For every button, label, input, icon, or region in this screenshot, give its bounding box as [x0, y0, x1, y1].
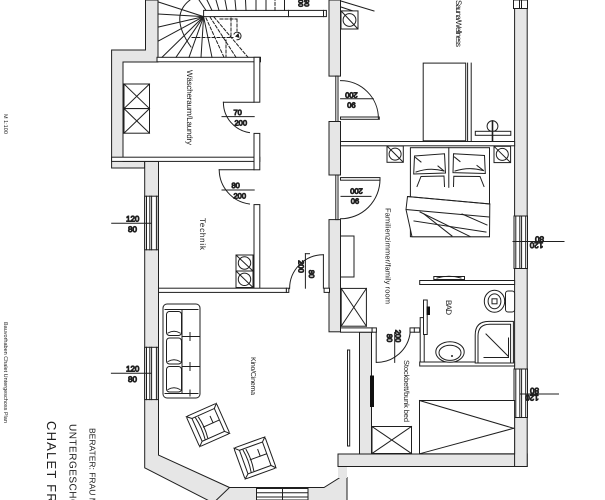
svg-text:80: 80 [307, 270, 316, 278]
svg-text:Bauvorhaben Chalet Untergescho: Bauvorhaben Chalet Untergeschoss Plan [2, 322, 8, 423]
svg-text:90: 90 [351, 197, 359, 206]
svg-text:120: 120 [529, 241, 543, 250]
svg-text:80: 80 [128, 225, 137, 234]
svg-text:Technik: Technik [198, 218, 207, 251]
svg-text:200: 200 [394, 330, 403, 343]
svg-text:BAD: BAD [444, 300, 453, 315]
svg-text:200: 200 [297, 0, 304, 7]
svg-text:Familienzimmer/family room: Familienzimmer/family room [384, 208, 393, 304]
svg-text:Sauna/Wellness: Sauna/Wellness [454, 0, 463, 47]
svg-text:120: 120 [126, 365, 140, 374]
svg-text:Wäscheraum/Laundry: Wäscheraum/Laundry [185, 70, 194, 145]
svg-text:120: 120 [126, 215, 140, 224]
svg-text:200: 200 [345, 90, 358, 99]
svg-text:Stockbett/bunk bed: Stockbett/bunk bed [402, 360, 411, 422]
svg-text:200: 200 [235, 118, 248, 127]
svg-text:80: 80 [128, 375, 137, 384]
svg-text:200: 200 [297, 260, 306, 273]
svg-text:120: 120 [525, 393, 539, 402]
svg-text:200: 200 [350, 186, 363, 195]
svg-text:90: 90 [303, 0, 310, 7]
svg-text:CHALET FRIEDA: CHALET FRIEDA [44, 421, 59, 500]
svg-text:M 1:100: M 1:100 [2, 114, 8, 134]
svg-text:BERATER: FRAU MÜLLER: BERATER: FRAU MÜLLER [88, 428, 98, 500]
svg-text:70: 70 [234, 108, 242, 117]
svg-text:80: 80 [385, 334, 394, 342]
svg-text:Kino/Cinema: Kino/Cinema [249, 357, 257, 395]
svg-text:80: 80 [232, 181, 240, 190]
svg-text:90: 90 [347, 100, 355, 109]
svg-text:UNTERGESCHOSS: UNTERGESCHOSS [67, 424, 78, 500]
svg-text:200: 200 [234, 192, 247, 201]
